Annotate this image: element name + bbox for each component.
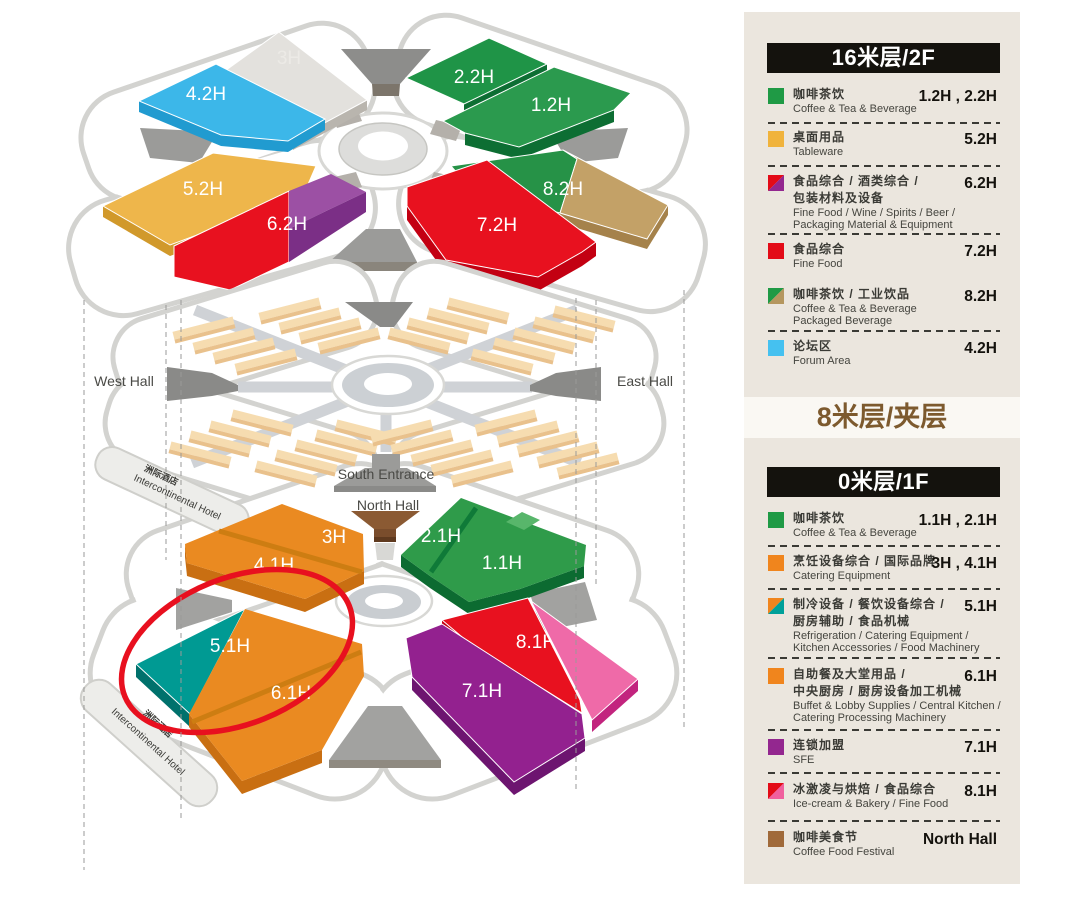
svg-text:1.2H: 1.2H: [531, 95, 571, 116]
svg-text:5.1H: 5.1H: [210, 636, 250, 657]
svg-text:7.2H: 7.2H: [477, 215, 517, 236]
svg-text:5.2H: 5.2H: [183, 179, 223, 200]
svg-text:4.2H: 4.2H: [186, 84, 226, 105]
svg-text:West Hall: West Hall: [94, 373, 154, 389]
svg-text:3H: 3H: [322, 527, 346, 548]
svg-text:2.1H: 2.1H: [421, 526, 461, 547]
svg-text:8.2H: 8.2H: [543, 179, 583, 200]
svg-text:East Hall: East Hall: [617, 373, 673, 389]
svg-text:6.2H: 6.2H: [267, 214, 307, 235]
svg-text:2.2H: 2.2H: [454, 67, 494, 88]
svg-text:1.1H: 1.1H: [482, 553, 522, 574]
svg-text:North Hall: North Hall: [357, 497, 419, 513]
svg-text:7.1H: 7.1H: [462, 681, 502, 702]
svg-text:South Entrance: South Entrance: [338, 466, 435, 482]
svg-text:3H: 3H: [277, 48, 301, 69]
